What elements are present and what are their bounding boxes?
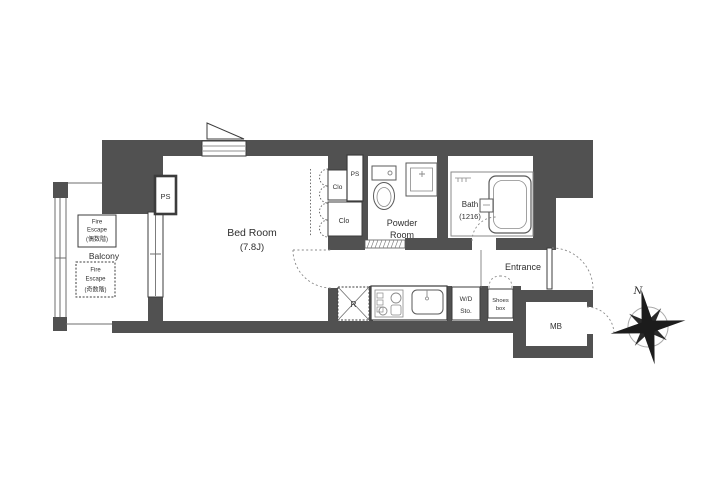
pipe-space-balcony: PS bbox=[155, 176, 176, 214]
bath-label: Bath bbox=[462, 200, 478, 209]
walls bbox=[53, 140, 593, 358]
closet-lower-label: Clo bbox=[339, 218, 350, 225]
washer-dryer-storage: W/D Sto. bbox=[452, 287, 480, 320]
fire-escape-hatch-even: Fire Escape (偶数階) bbox=[78, 215, 116, 247]
wd-label-1: W/D bbox=[460, 296, 473, 303]
fire-escape-even-line1: Fire bbox=[92, 220, 103, 226]
fire-escape-hatch-odd: Fire Escape (奇数階) bbox=[76, 262, 115, 297]
toilet bbox=[372, 166, 396, 210]
bedroom-label: Bed Room bbox=[227, 227, 277, 239]
shoes-box-label-2: box bbox=[496, 306, 505, 312]
meter-box: MB bbox=[526, 302, 614, 346]
bath-size-label: (1216) bbox=[459, 212, 481, 221]
floor-plan: Fire Escape (偶数階) Balcony Fire Escape (奇… bbox=[0, 0, 717, 490]
meter-box-label: MB bbox=[550, 322, 562, 331]
floor-plan-canvas: Fire Escape (偶数階) Balcony Fire Escape (奇… bbox=[0, 0, 717, 490]
ps-closet-label: PS bbox=[351, 171, 360, 178]
refrigerator-space: R bbox=[338, 287, 369, 320]
bedroom-size-label: (7.8J) bbox=[240, 242, 264, 253]
closet-upper-label: Clo bbox=[333, 184, 343, 191]
entrance-door bbox=[547, 248, 593, 289]
ps-balcony-label: PS bbox=[160, 192, 170, 201]
pipe-space-closet: PS bbox=[347, 155, 363, 201]
bedroom-door-arc bbox=[293, 250, 331, 288]
shoes-box: Shoes box bbox=[488, 276, 513, 318]
closet-lower: Clo bbox=[328, 202, 362, 236]
fire-escape-even-line2: Escape bbox=[87, 228, 108, 234]
compass-north-label: N bbox=[633, 286, 644, 297]
fire-escape-odd-line2: Escape bbox=[85, 277, 106, 283]
balcony-window bbox=[148, 212, 163, 297]
powder-room-label-2: Room bbox=[390, 230, 414, 240]
bedroom-north-window bbox=[202, 123, 246, 156]
powder-room-label-1: Powder bbox=[387, 218, 418, 228]
shoes-box-label-1: Shoes bbox=[492, 298, 509, 304]
wd-label-2: Sto. bbox=[460, 308, 472, 315]
kitchen-counter bbox=[371, 286, 447, 320]
closet-upper: Clo bbox=[328, 170, 347, 200]
refrigerator-label: R bbox=[351, 300, 357, 309]
entrance-label: Entrance bbox=[505, 262, 541, 272]
fire-escape-odd-line3: (奇数階) bbox=[85, 286, 107, 294]
powder-sink bbox=[406, 163, 437, 196]
closet-folding-doors bbox=[311, 169, 329, 237]
balcony-label: Balcony bbox=[89, 251, 120, 261]
powder-room-sliding-door bbox=[365, 240, 405, 248]
fire-escape-odd-line1: Fire bbox=[90, 268, 101, 274]
fire-escape-even-line3: (偶数階) bbox=[86, 235, 108, 243]
compass-rose: N bbox=[604, 283, 692, 371]
